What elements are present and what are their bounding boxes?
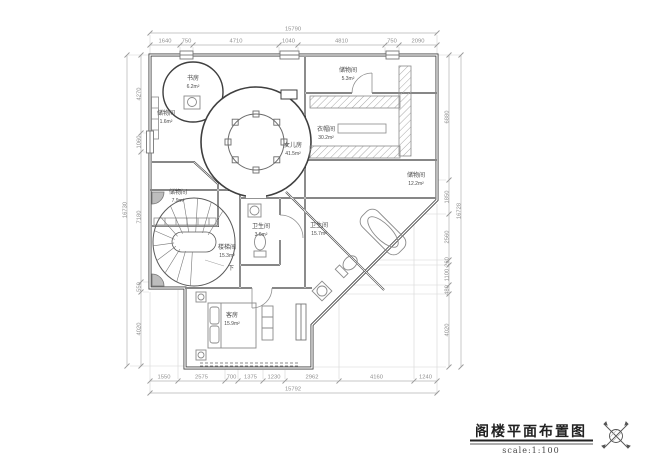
compass-icon (602, 422, 630, 448)
svg-text:储物间: 储物间 (407, 171, 425, 179)
svg-text:书房: 书房 (187, 74, 199, 82)
dim-bottom-seg: 2575 (195, 375, 208, 381)
svg-text:1.6m²: 1.6m² (160, 119, 173, 125)
dim-top-seg: 1040 (282, 39, 295, 45)
dim-bottom-total: 15792 (285, 387, 301, 393)
svg-text:7.9m²: 7.9m² (172, 198, 185, 204)
svg-text:储物间: 储物间 (169, 188, 187, 196)
svg-text:卫生间: 卫生间 (252, 222, 270, 230)
scale-label: scale:1:100 (502, 446, 559, 455)
svg-text:衣帽间: 衣帽间 (317, 125, 335, 133)
door-tab (281, 90, 297, 99)
dim-right-seg: 1100 (445, 269, 451, 281)
dim-bottom-seg: 700 (227, 375, 237, 381)
dim-left-seg: 4270 (137, 88, 143, 101)
svg-text:15.7m²: 15.7m² (311, 231, 327, 237)
svg-text:储物间: 储物间 (157, 109, 175, 117)
dim-bottom-seg: 2962 (306, 375, 319, 381)
dim-right-seg: 1850 (445, 191, 451, 204)
dim-bottom-seg: 1230 (268, 375, 281, 381)
dim-right-seg: 6880 (445, 111, 451, 124)
svg-text:3.6m²: 3.6m² (255, 232, 268, 238)
dim-left-seg: 7180 (137, 211, 143, 224)
svg-text:卫生间: 卫生间 (310, 221, 328, 229)
floor-plan-canvas: 15790 1640 750 4710 1040 4810 750 2090 1… (0, 0, 660, 464)
svg-text:储物间: 储物间 (339, 66, 357, 74)
dim-bottom-seg: 4160 (370, 375, 383, 381)
dim-top-seg: 2090 (412, 39, 425, 45)
dim-right-seg: 480 (445, 285, 451, 295)
dim-bottom-seg: 1550 (158, 375, 171, 381)
svg-text:15.9m²: 15.9m² (224, 321, 240, 327)
round-central-room (201, 87, 311, 197)
svg-text:6.2m²: 6.2m² (187, 84, 200, 90)
dim-bottom-seg: 1375 (244, 375, 257, 381)
dim-top-seg: 1640 (159, 39, 172, 45)
svg-text:30.2m²: 30.2m² (318, 135, 334, 141)
svg-text:12.2m²: 12.2m² (408, 181, 424, 187)
dim-left-seg: 1060 (137, 136, 143, 149)
dim-top-seg: 4810 (335, 39, 348, 45)
dim-right-seg: 2560 (445, 231, 451, 244)
dim-top-seg: 750 (387, 39, 397, 45)
floor-plan-page: 15790 1640 750 4710 1040 4810 750 2090 1… (0, 0, 660, 464)
dim-left-total: 16730 (123, 202, 129, 218)
dim-bottom-seg: 1240 (419, 375, 432, 381)
title-block: 阁楼平面布置图 scale:1:100 (470, 423, 593, 455)
drawing-title: 阁楼平面布置图 (475, 423, 587, 439)
dim-top-seg: 4710 (230, 39, 243, 45)
svg-text:41.5m²: 41.5m² (285, 151, 301, 157)
svg-text:楼梯间: 楼梯间 (218, 243, 236, 251)
dim-top-seg: 750 (182, 39, 192, 45)
svg-text:5.3m²: 5.3m² (342, 76, 355, 82)
stairs-down-label: 下 (228, 265, 234, 272)
dim-left-seg: 4020 (137, 323, 143, 336)
dim-right-seg: 260 (445, 257, 451, 267)
svg-text:15.3m²: 15.3m² (219, 253, 235, 259)
dim-right-total: 16728 (457, 203, 463, 219)
dim-right-seg: 4020 (445, 324, 451, 337)
svg-text:客房: 客房 (226, 311, 238, 319)
dim-left-seg: 550 (137, 282, 143, 292)
dim-top-total: 15790 (285, 27, 301, 33)
svg-text:女儿房: 女儿房 (284, 141, 302, 149)
